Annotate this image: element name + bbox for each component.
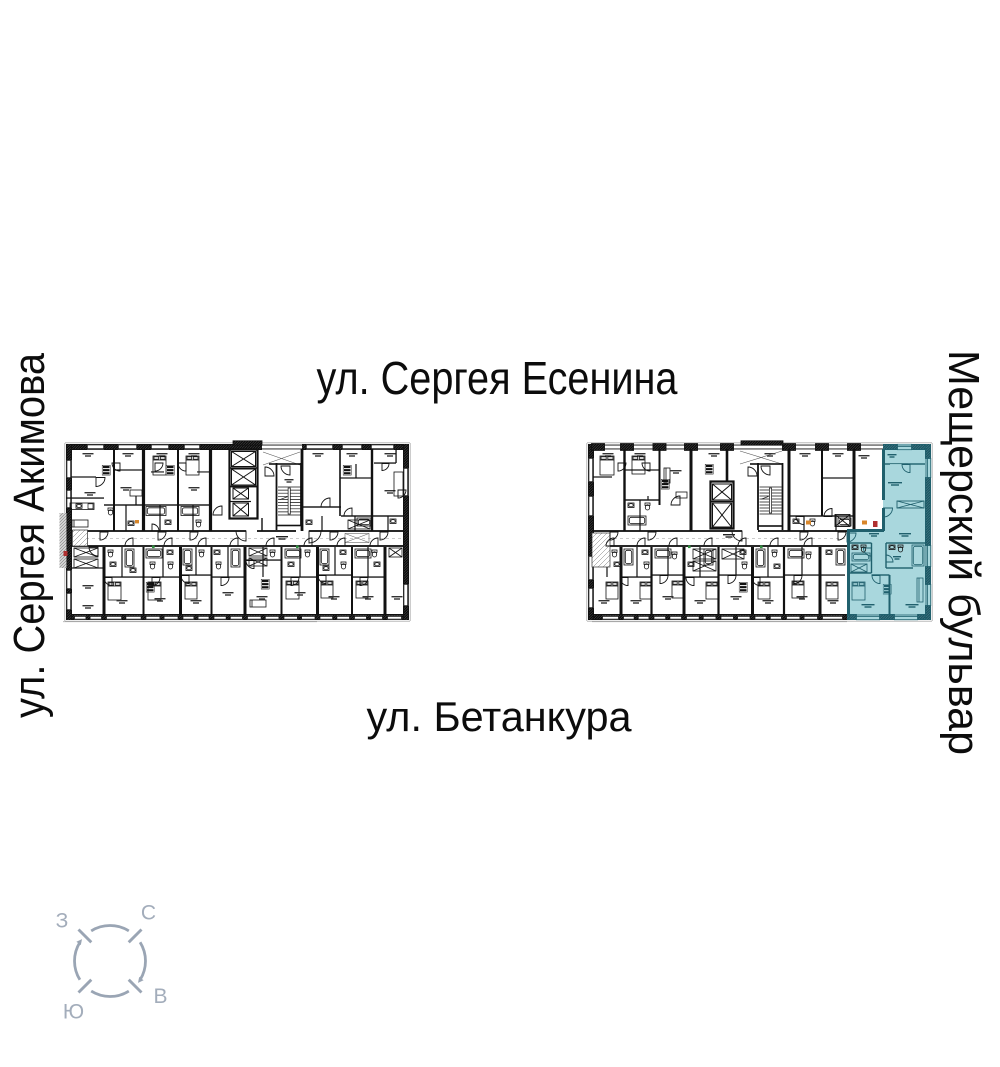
svg-text:С: С <box>141 902 156 925</box>
svg-text:ул. Бетанкура: ул. Бетанкура <box>367 693 633 740</box>
svg-text:ул. Сергея Акимова: ул. Сергея Акимова <box>5 353 54 718</box>
svg-text:В: В <box>153 985 167 1008</box>
svg-text:Мещерский бульвар: Мещерский бульвар <box>939 350 988 755</box>
svg-text:ул. Сергея Есенина: ул. Сергея Есенина <box>317 352 678 404</box>
svg-text:З: З <box>56 910 69 933</box>
svg-text:Ю: Ю <box>63 1001 84 1024</box>
